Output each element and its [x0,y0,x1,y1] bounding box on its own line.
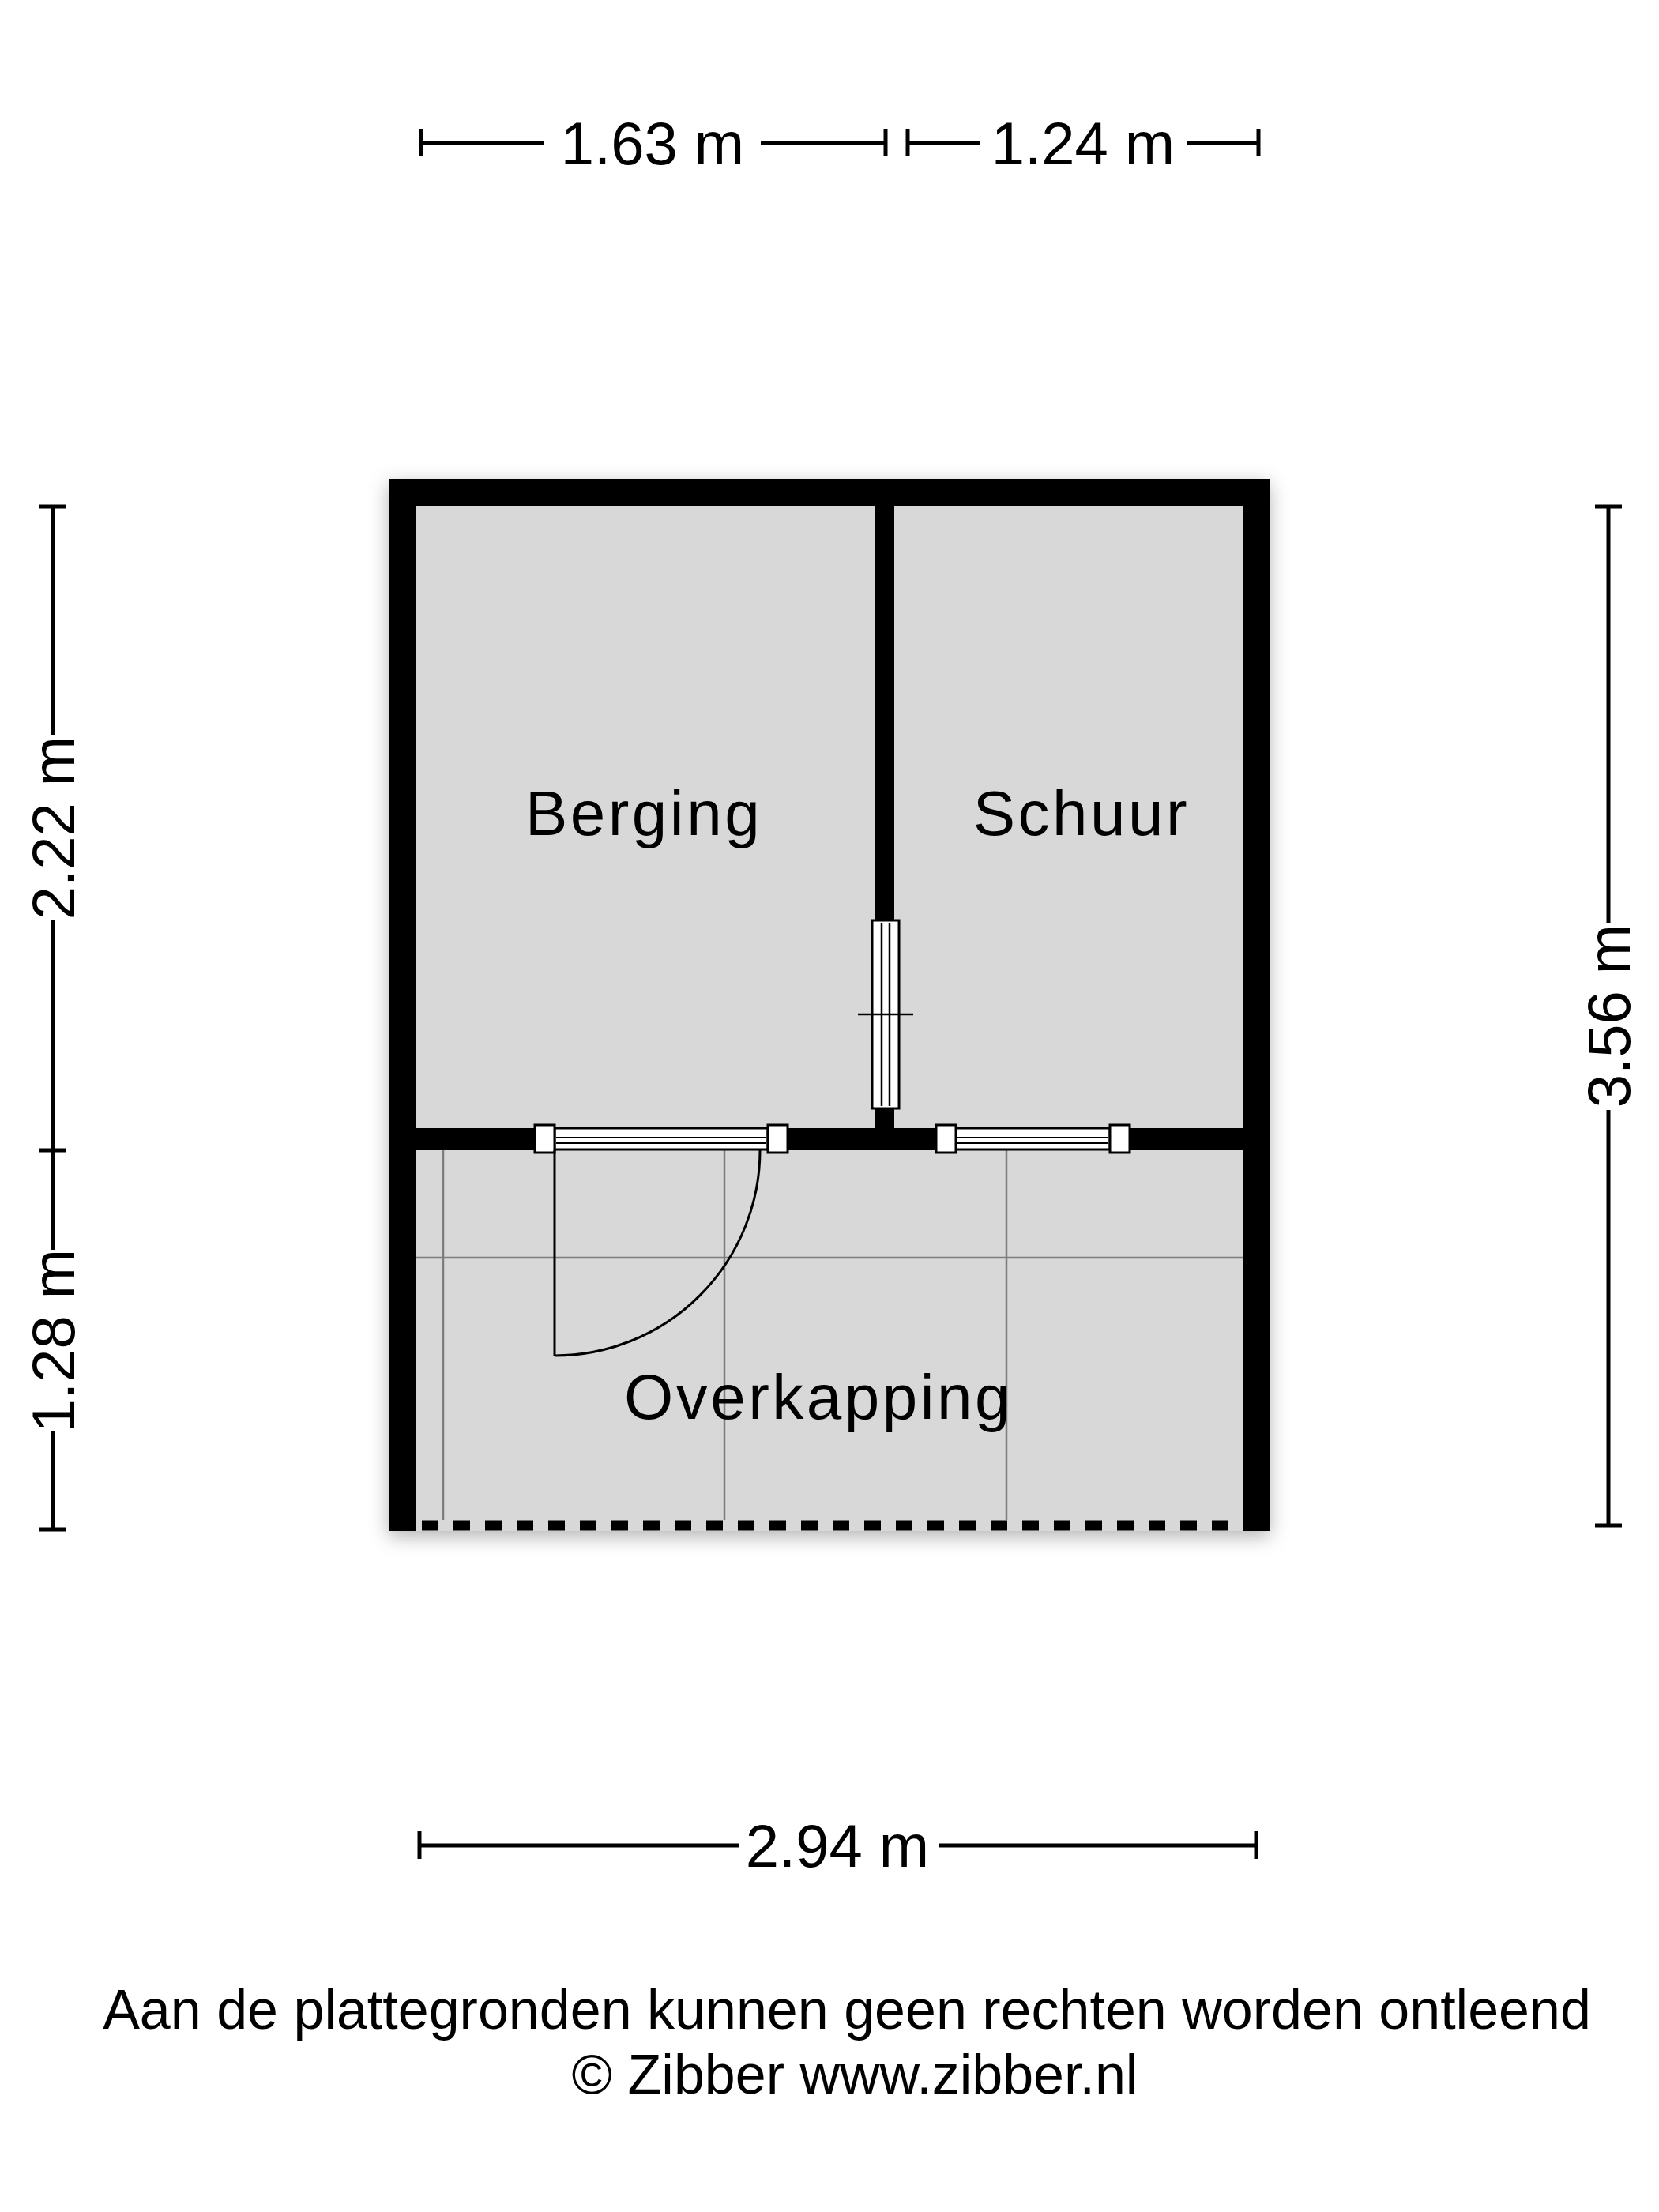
left-dimension-column: 2.22 m 1.28 m [20,506,87,1529]
floor-plan-canvas: 1.63 m 1.24 m 2.22 m 1.28 m 3.56 m [0,0,1659,2212]
right-dimension-column: 3.56 m [1575,506,1642,1525]
dimension-top-left: 1.63 m [421,110,886,177]
room-label-overkapping: Overkapping [624,1362,1013,1432]
left-wall [389,479,416,1531]
bottom-dimension-row: 2.94 m [419,1812,1256,1879]
divider-wall-stub [875,1108,894,1130]
inner-wall-left [416,1128,535,1150]
dimension-label-right: 3.56 m [1575,924,1642,1108]
right-wall [1243,479,1270,1531]
dimension-label-bottom: 2.94 m [746,1812,929,1879]
divider-wall-upper [875,506,894,920]
dimension-label-left-lower: 1.28 m [20,1249,87,1432]
top-dimension-row: 1.63 m 1.24 m [421,110,1258,177]
right-window-post-b [1110,1125,1130,1153]
dimension-label-left-upper: 2.22 m [20,736,87,920]
dimension-top-right: 1.24 m [908,110,1258,177]
left-window-post-a [535,1125,555,1153]
footer: Aan de plattegronden kunnen geen rechten… [103,1979,1591,2105]
inner-wall-middle [788,1128,936,1150]
right-window-symbol [936,1125,1130,1153]
left-window-post-b [768,1125,788,1153]
top-wall [389,479,1270,506]
dimension-label-top-left: 1.63 m [561,110,744,177]
disclaimer-text: Aan de plattegronden kunnen geen rechten… [103,1979,1591,2041]
copyright-text: © Zibber www.zibber.nl [572,2044,1138,2105]
room-label-berging: Berging [525,778,762,848]
room-label-schuur: Schuur [973,778,1190,848]
inner-wall-right [1130,1128,1243,1150]
right-window-post-a [936,1125,956,1153]
dimension-label-top-right: 1.24 m [991,110,1175,177]
left-window-symbol [535,1125,788,1153]
